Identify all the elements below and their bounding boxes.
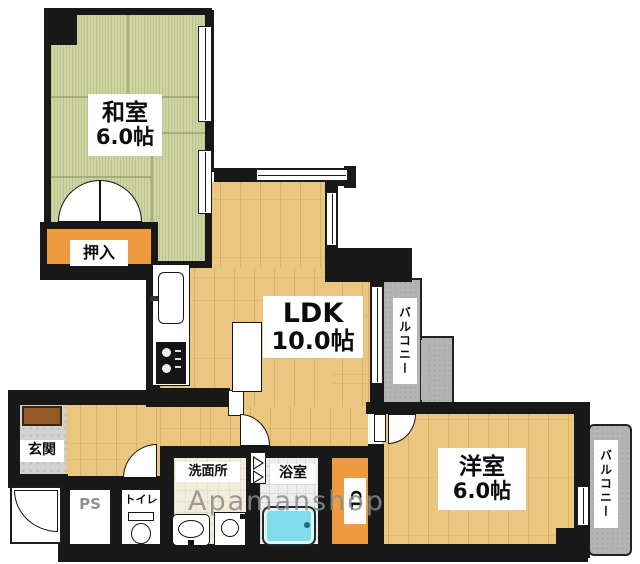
wall	[160, 446, 380, 458]
ldk-balcony	[421, 340, 427, 400]
floor-plan: 和室 6.0帖 押入 LDK 10.0帖 バルコニー バルコニー 洋室 6.0帖…	[0, 0, 640, 564]
wall	[8, 390, 153, 405]
oshiire-name: 押入	[83, 244, 115, 261]
oshiire-label: 押入	[70, 240, 128, 266]
wall	[110, 476, 174, 490]
stove-knob-icon	[175, 358, 181, 360]
stove-icon	[156, 342, 186, 384]
bathtub-drain-icon	[304, 522, 310, 528]
yoshitsu-label: 洋室 6.0帖	[438, 448, 526, 510]
toilet-icon	[128, 512, 154, 521]
kitchen-sink-icon	[158, 272, 184, 324]
window	[198, 26, 212, 122]
stove-knob-icon	[175, 366, 181, 368]
storage-alcove	[228, 390, 244, 416]
folding-door-icon	[254, 472, 262, 482]
window	[577, 486, 589, 526]
washbasin-tap-icon	[188, 540, 194, 546]
ldk-name: LDK	[283, 299, 344, 328]
ldk-size: 10.0帖	[271, 329, 354, 355]
toilet-icon	[131, 523, 151, 544]
ldk-balcony-label: バルコニー	[393, 298, 417, 384]
stove-burner-icon	[162, 364, 171, 373]
door-opening	[374, 414, 386, 442]
folding-door-icon	[254, 458, 262, 468]
washing-machine-drum-icon	[221, 519, 239, 537]
yoshitsu-size: 6.0帖	[453, 480, 511, 503]
toilet-name: トイレ	[125, 494, 158, 506]
tatami-mat-line	[51, 176, 151, 178]
wall-notch	[51, 15, 77, 45]
ldk-floor	[212, 182, 332, 268]
pipe-space-label: PS	[72, 494, 108, 514]
wall	[366, 402, 588, 414]
faucet-icon	[150, 296, 158, 301]
stove-knob-icon	[175, 350, 181, 352]
genkan-name: 玄関	[28, 443, 56, 458]
ldk-label: LDK 10.0帖	[263, 296, 363, 358]
wall	[40, 264, 160, 280]
bathroom-label: 浴室	[270, 464, 316, 484]
window	[198, 150, 212, 214]
washroom-name: 洗面所	[188, 465, 227, 479]
washroom-label: 洗面所	[176, 462, 240, 482]
wall	[325, 248, 412, 282]
wall	[370, 384, 384, 404]
washitsu-label: 和室 6.0帖	[88, 94, 162, 156]
yoshitsu-name: 洋室	[459, 455, 505, 480]
yoshitsu-balcony-label: バルコニー	[594, 440, 618, 528]
watermark: Apamanshop	[188, 486, 385, 517]
genkan-label: 玄関	[20, 440, 64, 462]
bathroom-name: 浴室	[279, 466, 307, 481]
window	[371, 286, 383, 384]
window	[256, 169, 348, 181]
window	[326, 192, 337, 246]
pipe-space-name: PS	[79, 496, 101, 512]
toilet-label: トイレ	[119, 492, 163, 508]
stove-burner-icon	[162, 348, 171, 357]
washitsu-size: 6.0帖	[96, 126, 154, 149]
tatami-mat-line	[127, 15, 129, 96]
washitsu-name: 和室	[102, 101, 148, 126]
shoe-cabinet-icon	[22, 406, 62, 426]
washbasin-bowl-icon	[178, 520, 204, 538]
storage-alcove	[232, 322, 262, 392]
